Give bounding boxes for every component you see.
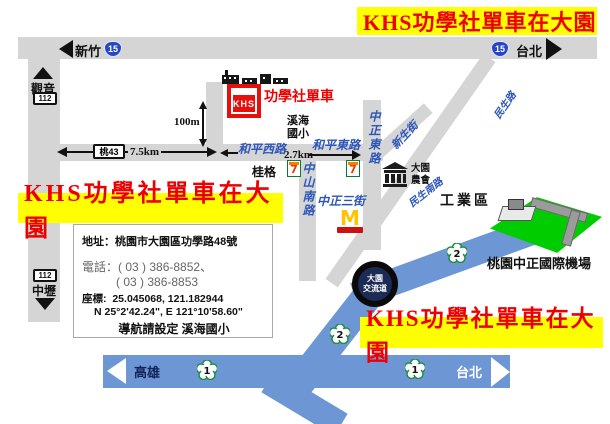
school-label: 溪海 國小 xyxy=(287,115,309,141)
arrow-left-xinzhu-icon xyxy=(59,40,73,58)
heping-east-arrow-line xyxy=(308,154,354,156)
banner-left: KHS功學社單車在大園 xyxy=(18,193,283,223)
coord-decimal-value: 25.045068, 121.182944 xyxy=(112,293,223,305)
arrow-left-icon xyxy=(57,147,67,157)
arrow-up-guanyin-icon xyxy=(33,67,53,79)
seven-stripe xyxy=(289,162,299,165)
road-khs-access xyxy=(206,82,223,144)
arrow-right-taipei-bottom-icon xyxy=(491,357,510,387)
phone-label: 電話： xyxy=(82,260,118,274)
airport-icon xyxy=(490,196,602,254)
route-15-number: 15 xyxy=(495,44,505,54)
nav-note-value: 導航請設定 溪海國小 xyxy=(118,322,229,336)
address-line: 地址：桃園市大園區功學路48號 xyxy=(82,233,266,249)
freeway-1-shield: 1 xyxy=(405,359,425,379)
arrow-100m-line xyxy=(202,107,204,141)
school-line2: 國小 xyxy=(287,128,309,141)
tao-43-number: 桃43 xyxy=(99,145,118,158)
freeway-2-number: 2 xyxy=(337,330,344,341)
route-112-shield: 112 xyxy=(33,92,57,105)
minsheng-label: 民生路 xyxy=(489,88,518,121)
school-line1: 溪海 xyxy=(287,115,309,128)
interchange-line1: 大園 xyxy=(367,274,383,284)
heping-west-label: 和平西路 xyxy=(238,140,286,157)
arrow-left-kaohsiung-icon xyxy=(107,358,126,384)
arrow-right-icon xyxy=(207,147,217,157)
freeway-2-shield: 2 xyxy=(330,324,350,344)
phone-line1: 電話：( 03 ) 386-8852、 xyxy=(82,258,266,275)
phone-line2: ( 03 ) 386-8853 xyxy=(116,275,266,289)
phone-value1: ( 03 ) 386-8852、 xyxy=(118,260,212,274)
nav-note-line: 導航請設定 溪海國小 xyxy=(82,320,266,337)
route-112-number: 112 xyxy=(39,271,52,280)
banner-top-text: KHS功學社單車在大園 xyxy=(363,5,596,37)
store-name-label: 功學社單車 xyxy=(264,86,334,106)
arrow-down-icon xyxy=(199,139,207,147)
arrow-down-zhongli-icon xyxy=(35,298,55,310)
zhongzheng-east-label: 中正東路 xyxy=(366,110,383,166)
arrow-right-taipei-icon xyxy=(546,38,562,60)
freeway-1-number: 1 xyxy=(204,366,211,377)
airport-label: 桃園中正國際機場 xyxy=(487,253,591,272)
heping-west-arrow-line xyxy=(226,152,238,154)
seven-glyph: 7 xyxy=(290,164,298,176)
distance-7-5km-label: 7.5km xyxy=(128,146,161,158)
address-value: 桃園市大園區功學路48號 xyxy=(115,236,237,248)
interchange-line2: 交流道 xyxy=(363,284,387,294)
freeway-1-number: 1 xyxy=(412,365,419,376)
farmers-line1: 大園 xyxy=(411,164,430,176)
factory-icon xyxy=(220,69,290,85)
farmers-association-label: 大園 農會 xyxy=(411,164,430,188)
industrial-area-label: 工業區 xyxy=(440,190,491,210)
banner-bottom: KHS功學社單車在大園 xyxy=(360,317,603,348)
taipei-top-label: 台北 xyxy=(516,41,542,60)
mcdonalds-icon: M xyxy=(337,208,363,234)
khs-brand-label: KHS xyxy=(233,99,255,109)
seven-eleven-icon: 7 xyxy=(346,160,360,177)
banner-bottom-text: KHS功學社單車在大園 xyxy=(366,299,603,367)
xinzhu-label: 新竹 xyxy=(75,41,101,60)
freeway-2-shield: 2 xyxy=(447,243,467,263)
mcdonalds-base xyxy=(337,227,363,233)
info-box: 地址：桃園市大園區功學路48號 電話：( 03 ) 386-8852、 ( 03… xyxy=(73,224,273,338)
farmers-line2: 農會 xyxy=(411,176,430,188)
coord-dms-value: N 25°2'42.24", E 121°10'58.60" xyxy=(94,306,243,318)
seven-eleven-icon: 7 xyxy=(287,160,301,177)
quaker-label: 桂格 xyxy=(252,163,276,180)
tao-43-shield: 桃43 xyxy=(93,144,125,159)
freeway-1-shield: 1 xyxy=(197,360,217,380)
phone-value2: ( 03 ) 386-8853 xyxy=(116,275,198,289)
arrow-up-icon xyxy=(199,101,207,109)
map: KHS功學社單車在大園 KHS功學社單車在大園 KHS功學社單車在大園 新竹 1… xyxy=(0,0,610,424)
taipei-bottom-label: 台北 xyxy=(456,362,482,381)
banner-top: KHS功學社單車在大園 xyxy=(357,7,597,35)
route-112-shield: 112 xyxy=(33,269,57,282)
route-112-number: 112 xyxy=(39,94,52,103)
route-15-number: 15 xyxy=(108,44,118,54)
zhongshan-south-label: 中山南路 xyxy=(300,162,317,218)
coord-label: 座標: xyxy=(82,293,107,305)
arrow-right-icon xyxy=(352,150,361,160)
farmers-association-icon xyxy=(381,162,409,189)
address-label: 地址： xyxy=(82,236,115,248)
dayuan-interchange-badge: 大園 交流道 xyxy=(352,261,398,307)
kaohsiung-label: 高雄 xyxy=(134,362,160,381)
coord-line1: 座標: 25.045068, 121.182944 xyxy=(82,291,266,306)
seven-glyph: 7 xyxy=(349,164,357,176)
distance-100m-label: 100m xyxy=(174,116,200,128)
freeway-2-number: 2 xyxy=(454,249,461,260)
coord-line2: N 25°2'42.24", E 121°10'58.60" xyxy=(94,306,266,318)
khs-store-box: KHS xyxy=(227,84,261,118)
zhongli-label: 中壢 xyxy=(32,282,56,299)
seven-stripe xyxy=(348,162,358,165)
